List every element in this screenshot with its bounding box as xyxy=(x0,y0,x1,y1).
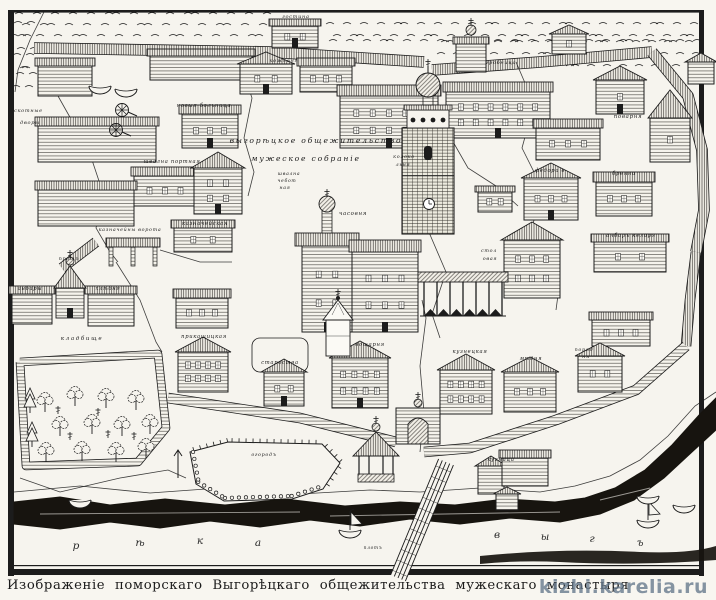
rect-glyph xyxy=(322,211,332,233)
circle-glyph xyxy=(75,391,83,399)
circle-glyph xyxy=(136,395,144,403)
rect-glyph xyxy=(533,119,603,128)
rect-glyph xyxy=(496,494,518,510)
circle-glyph xyxy=(244,496,247,499)
map-label-14: чебот xyxy=(277,177,296,184)
rect-glyph xyxy=(173,289,231,298)
river-letter-7: ъ xyxy=(637,537,644,549)
map-label-10: федора ѳ xyxy=(535,167,565,174)
tower-arch-window xyxy=(424,146,432,160)
map-label-16: казначейская xyxy=(182,221,228,227)
rect-glyph xyxy=(35,117,159,126)
bell xyxy=(421,118,426,123)
rect-glyph xyxy=(38,126,156,162)
rect-glyph xyxy=(589,312,653,320)
map-label-3: новыя больница xyxy=(177,102,232,109)
rect-glyph xyxy=(617,104,623,114)
circle-glyph xyxy=(146,443,154,451)
rect-glyph xyxy=(495,128,501,138)
circle-glyph xyxy=(106,393,114,401)
map-label-20: хлѣбня xyxy=(95,285,120,292)
onion-dome xyxy=(319,196,335,212)
rect-glyph xyxy=(443,82,553,92)
rect-glyph xyxy=(297,58,355,66)
building-stolovaya-long xyxy=(349,240,421,332)
map-scene: гостинаскотныедворыновыя больницакожевня… xyxy=(8,10,716,581)
rect-glyph xyxy=(147,49,255,56)
rect-glyph xyxy=(504,240,560,298)
rect-glyph xyxy=(8,569,704,575)
rect-glyph xyxy=(453,37,489,44)
rect-glyph xyxy=(418,272,508,282)
rect-glyph xyxy=(352,252,418,332)
rect-glyph xyxy=(8,10,704,13)
circle-glyph xyxy=(114,421,122,429)
rect-glyph xyxy=(382,322,388,332)
rect-glyph xyxy=(357,398,363,408)
rect-glyph xyxy=(326,320,350,356)
map-label-15: ная xyxy=(280,186,291,191)
building-mid-house xyxy=(475,186,515,212)
circle-glyph xyxy=(258,495,261,498)
circle-glyph xyxy=(74,446,82,454)
rect-glyph xyxy=(174,228,232,252)
rect-glyph xyxy=(35,58,95,66)
inscription-line2: мужеское собраніе xyxy=(251,154,360,163)
map-label-8: льня xyxy=(396,163,411,168)
building-brenna-house xyxy=(593,172,655,216)
circle-glyph xyxy=(60,421,68,429)
circle-glyph xyxy=(372,423,380,431)
building-povarnya-house xyxy=(533,119,603,160)
circle-glyph xyxy=(251,495,254,498)
rect-glyph xyxy=(402,128,454,234)
bell xyxy=(441,118,446,123)
building-right-cells-house xyxy=(589,312,653,346)
rect-glyph xyxy=(106,238,160,247)
rect-glyph xyxy=(215,204,221,214)
path-glyph xyxy=(408,418,428,444)
circle-glyph xyxy=(310,488,313,491)
rect-glyph xyxy=(38,66,92,96)
rect-glyph xyxy=(131,167,199,176)
map-label-0: гостина xyxy=(282,14,309,20)
river-letter-4: в xyxy=(494,529,500,541)
map-label-26: овая xyxy=(483,257,498,262)
map-label-6: поварня xyxy=(614,114,643,120)
river-letter-5: ы xyxy=(541,531,550,543)
building-kelar-barn xyxy=(591,234,669,272)
engraving-page: гостинаскотныедворыновыя больницакожевня… xyxy=(0,0,716,600)
map-label-34: плотъ xyxy=(364,546,383,551)
rect-glyph xyxy=(688,62,714,84)
map-label-32: кузница xyxy=(487,457,514,463)
map-label-13: швална xyxy=(278,172,301,177)
river-letter-3: а xyxy=(255,537,261,549)
circle-glyph xyxy=(214,491,217,494)
caption: Изображеніе поморскаго Выгорѣцкаго общеж… xyxy=(7,578,629,593)
circle-glyph xyxy=(237,496,240,499)
circle-glyph xyxy=(116,447,124,455)
circle-glyph xyxy=(138,443,146,451)
rect-glyph xyxy=(67,308,73,318)
circle-glyph xyxy=(52,421,60,429)
circle-glyph xyxy=(279,495,282,498)
map-label-24: вощарня xyxy=(355,342,385,348)
map-label-23: староства xyxy=(261,360,299,366)
building-barn-a xyxy=(35,58,95,96)
rect-glyph xyxy=(478,192,512,212)
map-label-21: кладбище xyxy=(61,335,104,342)
rect-glyph xyxy=(475,186,515,192)
circle-glyph xyxy=(108,447,116,455)
rect-glyph xyxy=(150,56,252,80)
map-label-29: мѣдня xyxy=(520,356,543,362)
circle-glyph xyxy=(46,447,54,455)
circle-glyph xyxy=(98,393,106,401)
circle-glyph xyxy=(208,487,211,490)
circle-glyph xyxy=(230,496,233,499)
rect-glyph xyxy=(440,370,492,414)
circle-glyph xyxy=(194,464,197,467)
circle-glyph xyxy=(265,495,268,498)
onion-dome xyxy=(416,73,440,97)
monastery-engraving: гостинаскотныедворыновыя больницакожевня… xyxy=(0,0,716,600)
building-barn-d xyxy=(35,181,137,226)
circle-glyph xyxy=(142,419,150,427)
circle-glyph xyxy=(297,492,300,495)
circle-glyph xyxy=(92,419,100,427)
bell xyxy=(431,118,436,123)
circle-glyph xyxy=(84,419,92,427)
building-kuznitsa-hut2 xyxy=(499,450,551,486)
circle-glyph xyxy=(197,478,200,481)
circle-glyph xyxy=(272,495,275,498)
map-label-11: бренна xyxy=(612,170,636,177)
building-khlebnya-barn xyxy=(85,286,137,326)
building-prikaz-upper xyxy=(173,289,231,328)
river-letter-0: р xyxy=(73,540,80,552)
rect-glyph xyxy=(178,352,228,392)
map-label-5: гробница xyxy=(486,59,516,66)
rect-glyph xyxy=(35,181,137,190)
rect-glyph xyxy=(292,38,298,48)
rect-glyph xyxy=(109,247,113,266)
river-letter-6: г xyxy=(589,533,595,545)
circle-glyph xyxy=(466,25,476,35)
circle-glyph xyxy=(67,391,75,399)
building-barn-c xyxy=(35,117,159,162)
circle-glyph xyxy=(414,399,422,407)
rect-glyph xyxy=(12,294,52,324)
map-label-28: кузнецкая xyxy=(453,349,488,355)
rect-glyph xyxy=(131,247,135,266)
watermark: kizhi.karelia.ru xyxy=(539,576,708,598)
rect-glyph xyxy=(358,474,394,482)
rect-glyph xyxy=(8,565,704,566)
bell xyxy=(411,118,416,123)
map-label-19: прощъ xyxy=(59,257,80,262)
map-label-33: огородъ xyxy=(251,452,276,458)
inscription-line1: выгорѣцкое общежительство xyxy=(230,136,403,145)
map-label-4: кожевня xyxy=(269,58,298,64)
map-label-25: стол xyxy=(481,249,497,254)
circle-glyph xyxy=(150,419,158,427)
map-label-1: скотные xyxy=(14,108,43,114)
river-letter-1: ѣ xyxy=(135,537,144,549)
map-label-30: поряд xyxy=(575,347,594,353)
rect-glyph xyxy=(349,240,421,252)
river-letter-2: к xyxy=(197,535,204,547)
building-shvalnya-portnaya-bld xyxy=(131,167,199,206)
map-label-17: казначейны ворота xyxy=(99,227,162,233)
circle-glyph xyxy=(317,486,320,489)
circle-glyph xyxy=(128,395,136,403)
circle-glyph xyxy=(303,490,306,493)
circle-glyph xyxy=(191,450,194,453)
rect-glyph xyxy=(578,356,622,392)
map-label-7: колоко xyxy=(393,155,415,160)
map-label-27: анбаръ келаря xyxy=(606,232,656,239)
rect-glyph xyxy=(153,247,157,266)
map-label-31: ня xyxy=(582,355,590,360)
circle-glyph xyxy=(38,447,46,455)
rect-glyph xyxy=(207,138,213,148)
circle-glyph xyxy=(202,484,205,487)
rect-glyph xyxy=(404,105,452,110)
circle-glyph xyxy=(290,494,293,497)
circle-glyph xyxy=(220,495,223,498)
map-label-2: дворы xyxy=(20,120,40,126)
building-barn-b xyxy=(147,49,255,80)
rect-glyph xyxy=(38,190,134,226)
circle-glyph xyxy=(82,446,90,454)
circle-glyph xyxy=(193,457,196,460)
map-label-12: швална портная xyxy=(144,159,201,165)
rect-glyph xyxy=(263,84,269,94)
circle-glyph xyxy=(286,494,289,497)
circle-glyph xyxy=(45,397,53,405)
map-label-9: часовня xyxy=(339,211,367,217)
rect-glyph xyxy=(88,294,134,326)
rect-glyph xyxy=(269,19,321,26)
rect-glyph xyxy=(548,210,554,220)
map-label-22: прикащицкая xyxy=(181,334,227,340)
circle-glyph xyxy=(37,397,45,405)
rect-glyph xyxy=(478,466,504,494)
rect-glyph xyxy=(594,242,666,272)
map-label-18: анбары xyxy=(18,285,43,292)
building-gostina-house xyxy=(269,19,321,48)
rect-glyph xyxy=(699,10,704,576)
rect-glyph xyxy=(281,396,287,406)
circle-glyph xyxy=(195,471,198,474)
rect-glyph xyxy=(456,44,486,72)
circle-glyph xyxy=(122,421,130,429)
